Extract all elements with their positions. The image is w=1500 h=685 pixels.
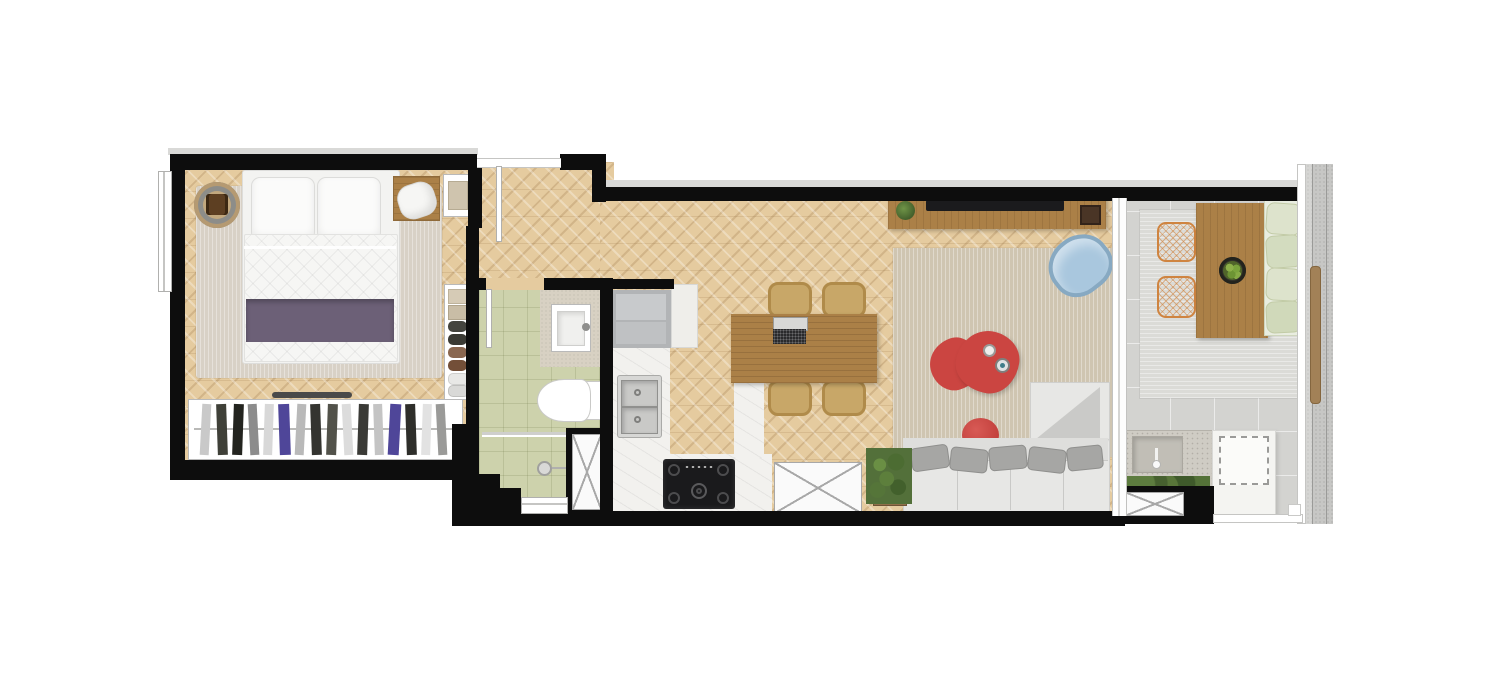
fruit-bowl-fruits (1223, 261, 1242, 280)
garment (421, 404, 432, 455)
wall-left-bedroom (170, 154, 185, 480)
sofa-pillow-3 (988, 444, 1028, 471)
refrigerator-top (616, 294, 666, 320)
garment (326, 404, 338, 455)
facade-wood-plank (1310, 266, 1321, 404)
sliding-glass-door (1112, 198, 1127, 516)
garment (405, 404, 417, 455)
tray-inset (448, 181, 468, 210)
service-shaft-balcony (1126, 492, 1184, 516)
balcony-corner-detail (1288, 504, 1301, 516)
wall-kitchen-top (610, 279, 674, 289)
refrigerator-body (616, 322, 666, 344)
kitchen-peninsula (734, 378, 764, 458)
shelf-item-shoe2 (448, 334, 467, 345)
sofa-pillow-4 (1027, 446, 1068, 474)
garment (373, 404, 384, 455)
laptop-keyboard (773, 329, 806, 344)
dining-chair-2 (822, 282, 866, 318)
balcony-faucet-icon (1152, 460, 1161, 469)
shelf-item-shoe3 (448, 347, 467, 358)
wall-bath-kitchen-divider (600, 278, 613, 526)
wall-bedroom-divider-stub (468, 166, 482, 228)
entry-threshold (477, 158, 561, 168)
balcony-railing-right (1297, 164, 1306, 524)
wall-bottom-bedroom (170, 460, 468, 480)
wardrobe-handle (272, 392, 352, 398)
facade-ledge-line2 (1326, 164, 1327, 524)
sink-drain2 (634, 416, 641, 423)
garment (357, 404, 369, 455)
service-shaft-kitchen (774, 462, 862, 514)
cooktop-knobs (684, 465, 714, 469)
cabinet-dashed-outline (1219, 436, 1269, 485)
dining-chair-4 (822, 380, 866, 416)
sideboard-tray (1080, 205, 1101, 225)
sink-basin (557, 311, 585, 346)
burner3 (668, 492, 680, 504)
toilet-bowl (537, 379, 591, 422)
orange-wire-chair-1 (1157, 222, 1196, 262)
garment (263, 404, 274, 455)
garment (216, 404, 228, 455)
bathroom-door-leaf (486, 289, 492, 348)
bathroom-door-gap (486, 278, 544, 290)
bed-duvet (244, 234, 398, 362)
sofa-pillow-2 (949, 446, 989, 474)
burner1 (668, 464, 680, 476)
duvet-fold (244, 246, 396, 249)
bedroom-window (158, 171, 172, 292)
burner-center (691, 483, 707, 499)
orange-wire-chair-2 (1157, 276, 1196, 318)
burner2 (717, 464, 729, 476)
entry-door-leaf (496, 166, 502, 242)
table-dish-1 (983, 344, 996, 357)
dining-chair-3 (768, 380, 812, 416)
bed-runner (246, 299, 394, 342)
service-shaft-bathroom (572, 434, 602, 510)
shelf-item-shoe1 (448, 321, 467, 332)
floor-plan (0, 0, 1500, 685)
sink-drain1 (634, 389, 641, 396)
sideboard-plant-icon (896, 201, 915, 220)
dining-chair-1 (768, 282, 812, 318)
sofa-pillow-5 (1066, 444, 1104, 472)
wall-bath-corner-a (479, 474, 500, 526)
wall-bath-corner-b (500, 488, 521, 526)
wall-top-bedroom (170, 154, 477, 170)
shelf-item-shoe4 (448, 360, 467, 371)
pillow-right (317, 177, 381, 241)
pillow-left (251, 177, 315, 241)
garment (278, 404, 291, 455)
garment (310, 404, 322, 455)
shower-head-icon (537, 461, 552, 476)
round-table-center (206, 194, 228, 215)
sink-faucet-icon (582, 323, 590, 331)
wall-top-living-balcony (600, 187, 1300, 201)
shower-glass-partition (482, 432, 566, 435)
table-dish-2-center (1000, 363, 1005, 368)
burner4 (717, 492, 729, 504)
bathroom-window (521, 497, 568, 514)
floor-plant-foliage (866, 448, 912, 504)
garment (232, 404, 244, 455)
counter-side-panel (671, 284, 698, 348)
